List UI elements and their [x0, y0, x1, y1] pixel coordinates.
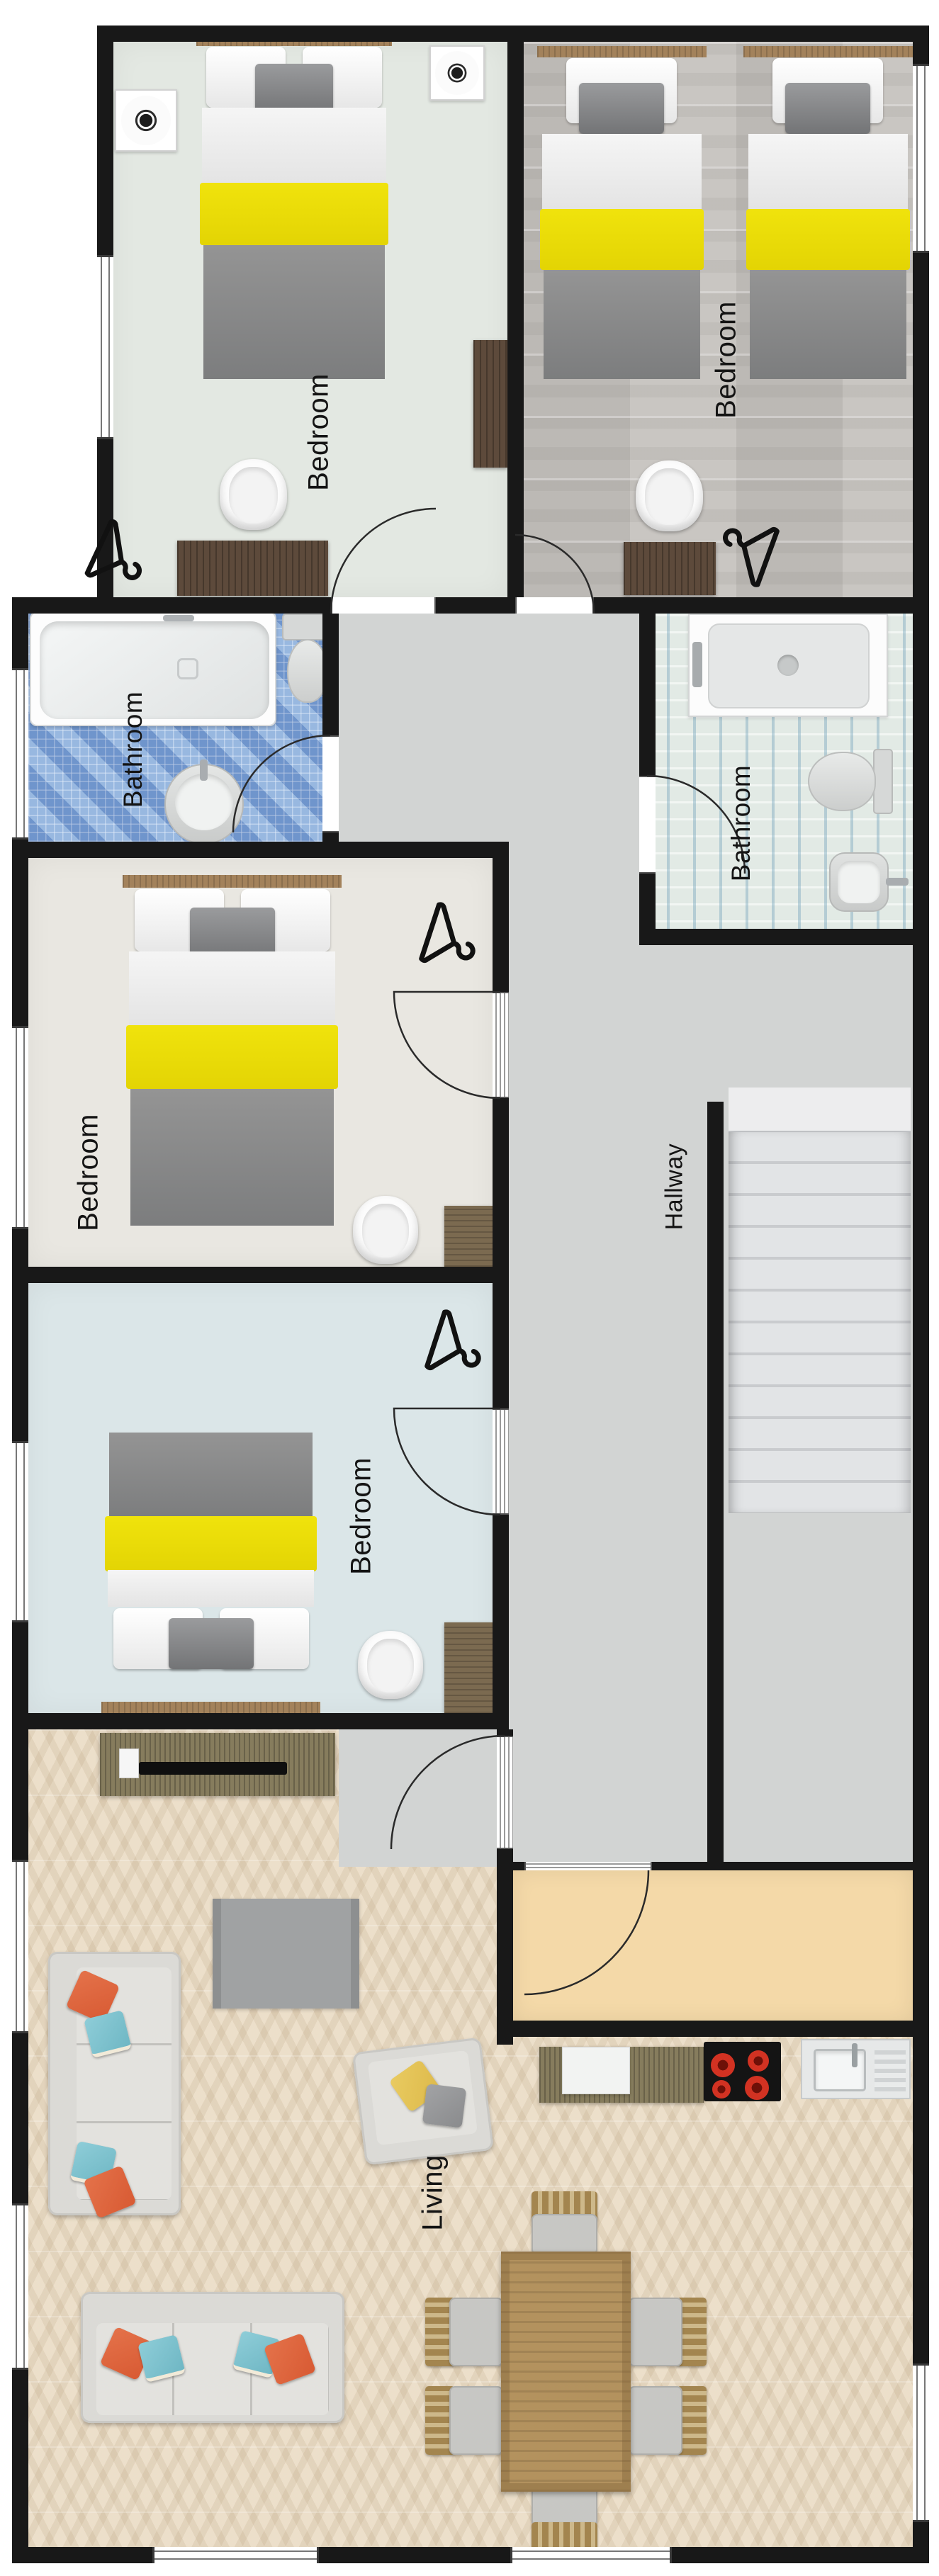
hanger-icon — [427, 1311, 489, 1382]
room-label-bedroom-middle: Bedroom — [73, 1114, 105, 1231]
hanger-icon — [87, 521, 154, 593]
room-label-bathroom-left: Bathroom — [118, 691, 148, 808]
hanger-icon — [421, 904, 483, 974]
room-label-bedroom-top-left: Bedroom — [303, 373, 335, 491]
door-swing-arc — [233, 735, 330, 832]
room-label-hallway: Hallway — [661, 1143, 689, 1231]
door-swing-arc — [391, 1736, 505, 1849]
door-swing-arc — [331, 509, 436, 614]
room-label-bedroom-lower: Bedroom — [346, 1457, 378, 1575]
door-swing-overlay — [0, 0, 939, 2576]
door-swing-arc — [394, 992, 500, 1098]
door-swing-arc — [394, 1408, 500, 1515]
door-swing-arc — [515, 535, 594, 614]
floor-plan: Bedroom Bedroom Bathroom Bathroom Bedroo… — [0, 0, 939, 2576]
room-label-living: Living — [417, 2154, 449, 2231]
room-label-bedroom-top-right: Bedroom — [711, 301, 743, 419]
hanger-icon — [714, 514, 777, 585]
room-label-bathroom-right: Bathroom — [726, 765, 756, 881]
door-swing-arc — [524, 1870, 648, 1994]
